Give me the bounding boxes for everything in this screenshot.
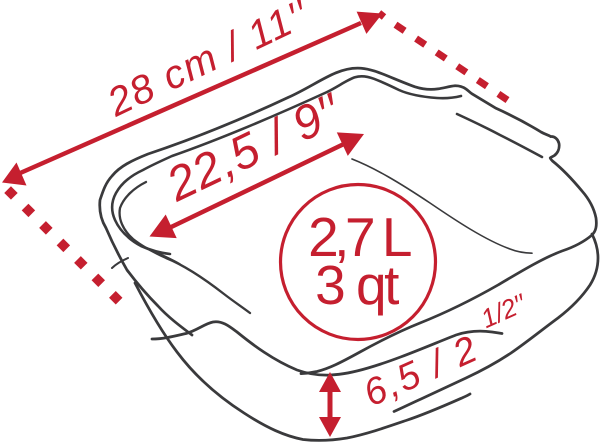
svg-text:3 qt: 3 qt: [315, 254, 399, 316]
svg-text:1/2′′: 1/2′′: [476, 287, 531, 334]
svg-text:6,5 / 2: 6,5 / 2: [358, 328, 486, 416]
